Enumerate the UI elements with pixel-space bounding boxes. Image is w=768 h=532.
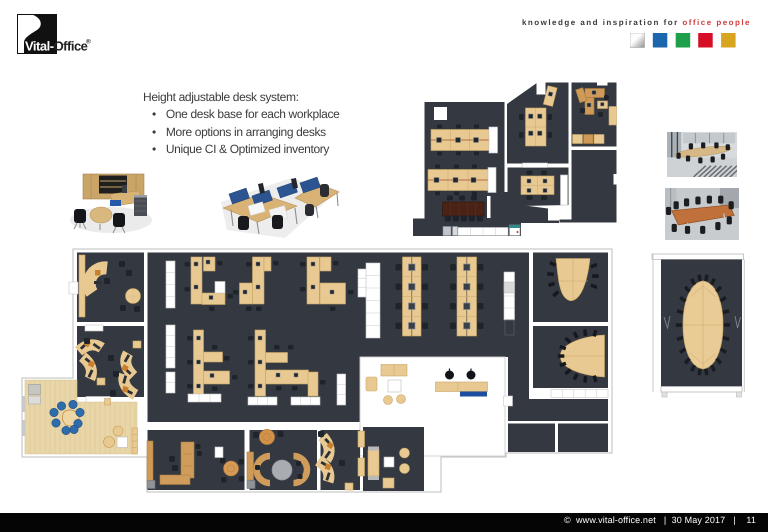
svg-text:®: ® [86, 39, 91, 46]
svg-text:Vital-Office: Vital-Office [25, 39, 88, 54]
